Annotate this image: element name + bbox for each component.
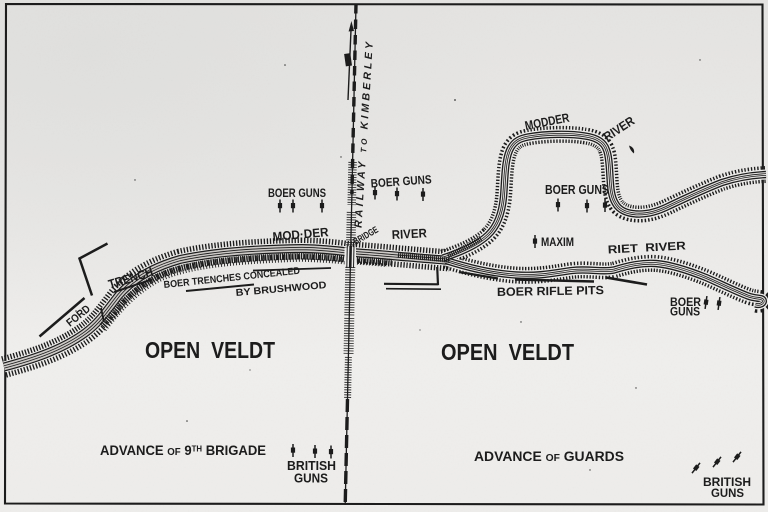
svg-text:OPEN VELDT: OPEN VELDT bbox=[145, 337, 276, 363]
svg-text:OPEN VELDT: OPEN VELDT bbox=[441, 339, 575, 365]
svg-text:BOER RIFLE PITS: BOER RIFLE PITS bbox=[497, 283, 604, 299]
svg-text:ADVANCE OF GUARDS: ADVANCE OF GUARDS bbox=[474, 449, 624, 465]
svg-text:ADVANCE OF 9TH BRIGADE: ADVANCE OF 9TH BRIGADE bbox=[100, 443, 266, 459]
svg-text:MAXIM: MAXIM bbox=[541, 237, 574, 249]
svg-text:BOER GUNS: BOER GUNS bbox=[268, 186, 326, 200]
svg-text:BOER GUNS: BOER GUNS bbox=[545, 183, 609, 197]
svg-text:GUNS: GUNS bbox=[711, 486, 744, 500]
svg-text:GUNS: GUNS bbox=[670, 307, 700, 319]
svg-text:RIVER: RIVER bbox=[391, 226, 427, 242]
svg-text:GUNS: GUNS bbox=[294, 472, 328, 486]
